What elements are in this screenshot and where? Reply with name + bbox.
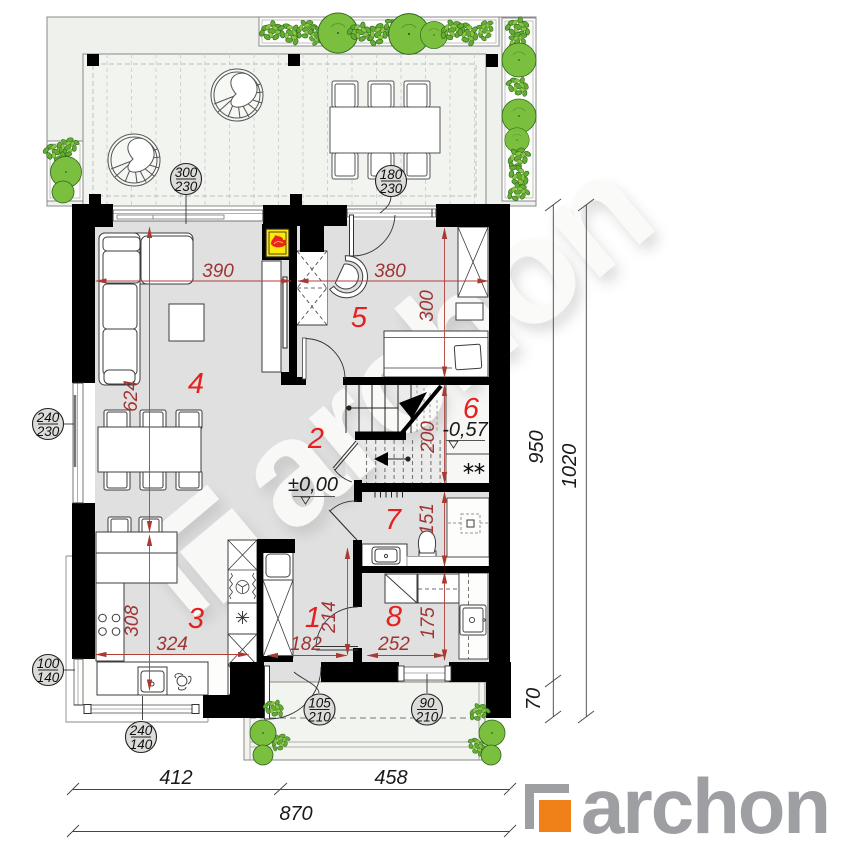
svg-text:140: 140	[37, 670, 60, 685]
svg-text:2: 2	[307, 423, 324, 455]
svg-text:300: 300	[417, 290, 438, 322]
svg-text:300: 300	[175, 165, 198, 180]
svg-text:3: 3	[188, 603, 204, 635]
svg-text:1: 1	[305, 602, 321, 634]
svg-text:151: 151	[417, 503, 438, 535]
svg-text:90: 90	[419, 696, 435, 711]
svg-text:390: 390	[202, 261, 234, 282]
svg-text:458: 458	[374, 767, 407, 789]
svg-text:105: 105	[308, 696, 331, 711]
svg-text:380: 380	[374, 261, 406, 282]
svg-text:175: 175	[418, 607, 439, 639]
svg-text:624: 624	[121, 380, 142, 412]
svg-text:240: 240	[36, 410, 60, 425]
svg-text:140: 140	[130, 737, 153, 752]
svg-text:±0,00: ±0,00	[288, 474, 338, 496]
svg-text:4: 4	[188, 368, 204, 400]
svg-text:870: 870	[279, 803, 312, 825]
svg-text:230: 230	[174, 179, 198, 194]
svg-text:230: 230	[36, 424, 60, 439]
svg-text:100: 100	[37, 656, 60, 671]
svg-text:8: 8	[386, 601, 402, 633]
svg-text:200: 200	[418, 421, 439, 454]
svg-text:308: 308	[122, 605, 143, 637]
svg-text:214: 214	[319, 601, 340, 634]
svg-text:210: 210	[307, 710, 331, 725]
svg-text:180: 180	[380, 167, 403, 182]
svg-text:70: 70	[523, 688, 545, 710]
svg-text:240: 240	[129, 723, 153, 738]
svg-text:252: 252	[377, 634, 410, 655]
svg-text:412: 412	[159, 767, 192, 789]
svg-text:1020: 1020	[559, 444, 581, 489]
svg-text:230: 230	[379, 181, 403, 196]
svg-text:950: 950	[526, 430, 548, 463]
svg-text:182: 182	[290, 634, 322, 655]
svg-text:archon: archon	[581, 762, 829, 850]
svg-text:-0,57: -0,57	[442, 419, 488, 441]
svg-text:7: 7	[385, 504, 403, 536]
svg-text:5: 5	[351, 302, 368, 334]
svg-text:210: 210	[415, 710, 439, 725]
svg-text:324: 324	[156, 634, 188, 655]
